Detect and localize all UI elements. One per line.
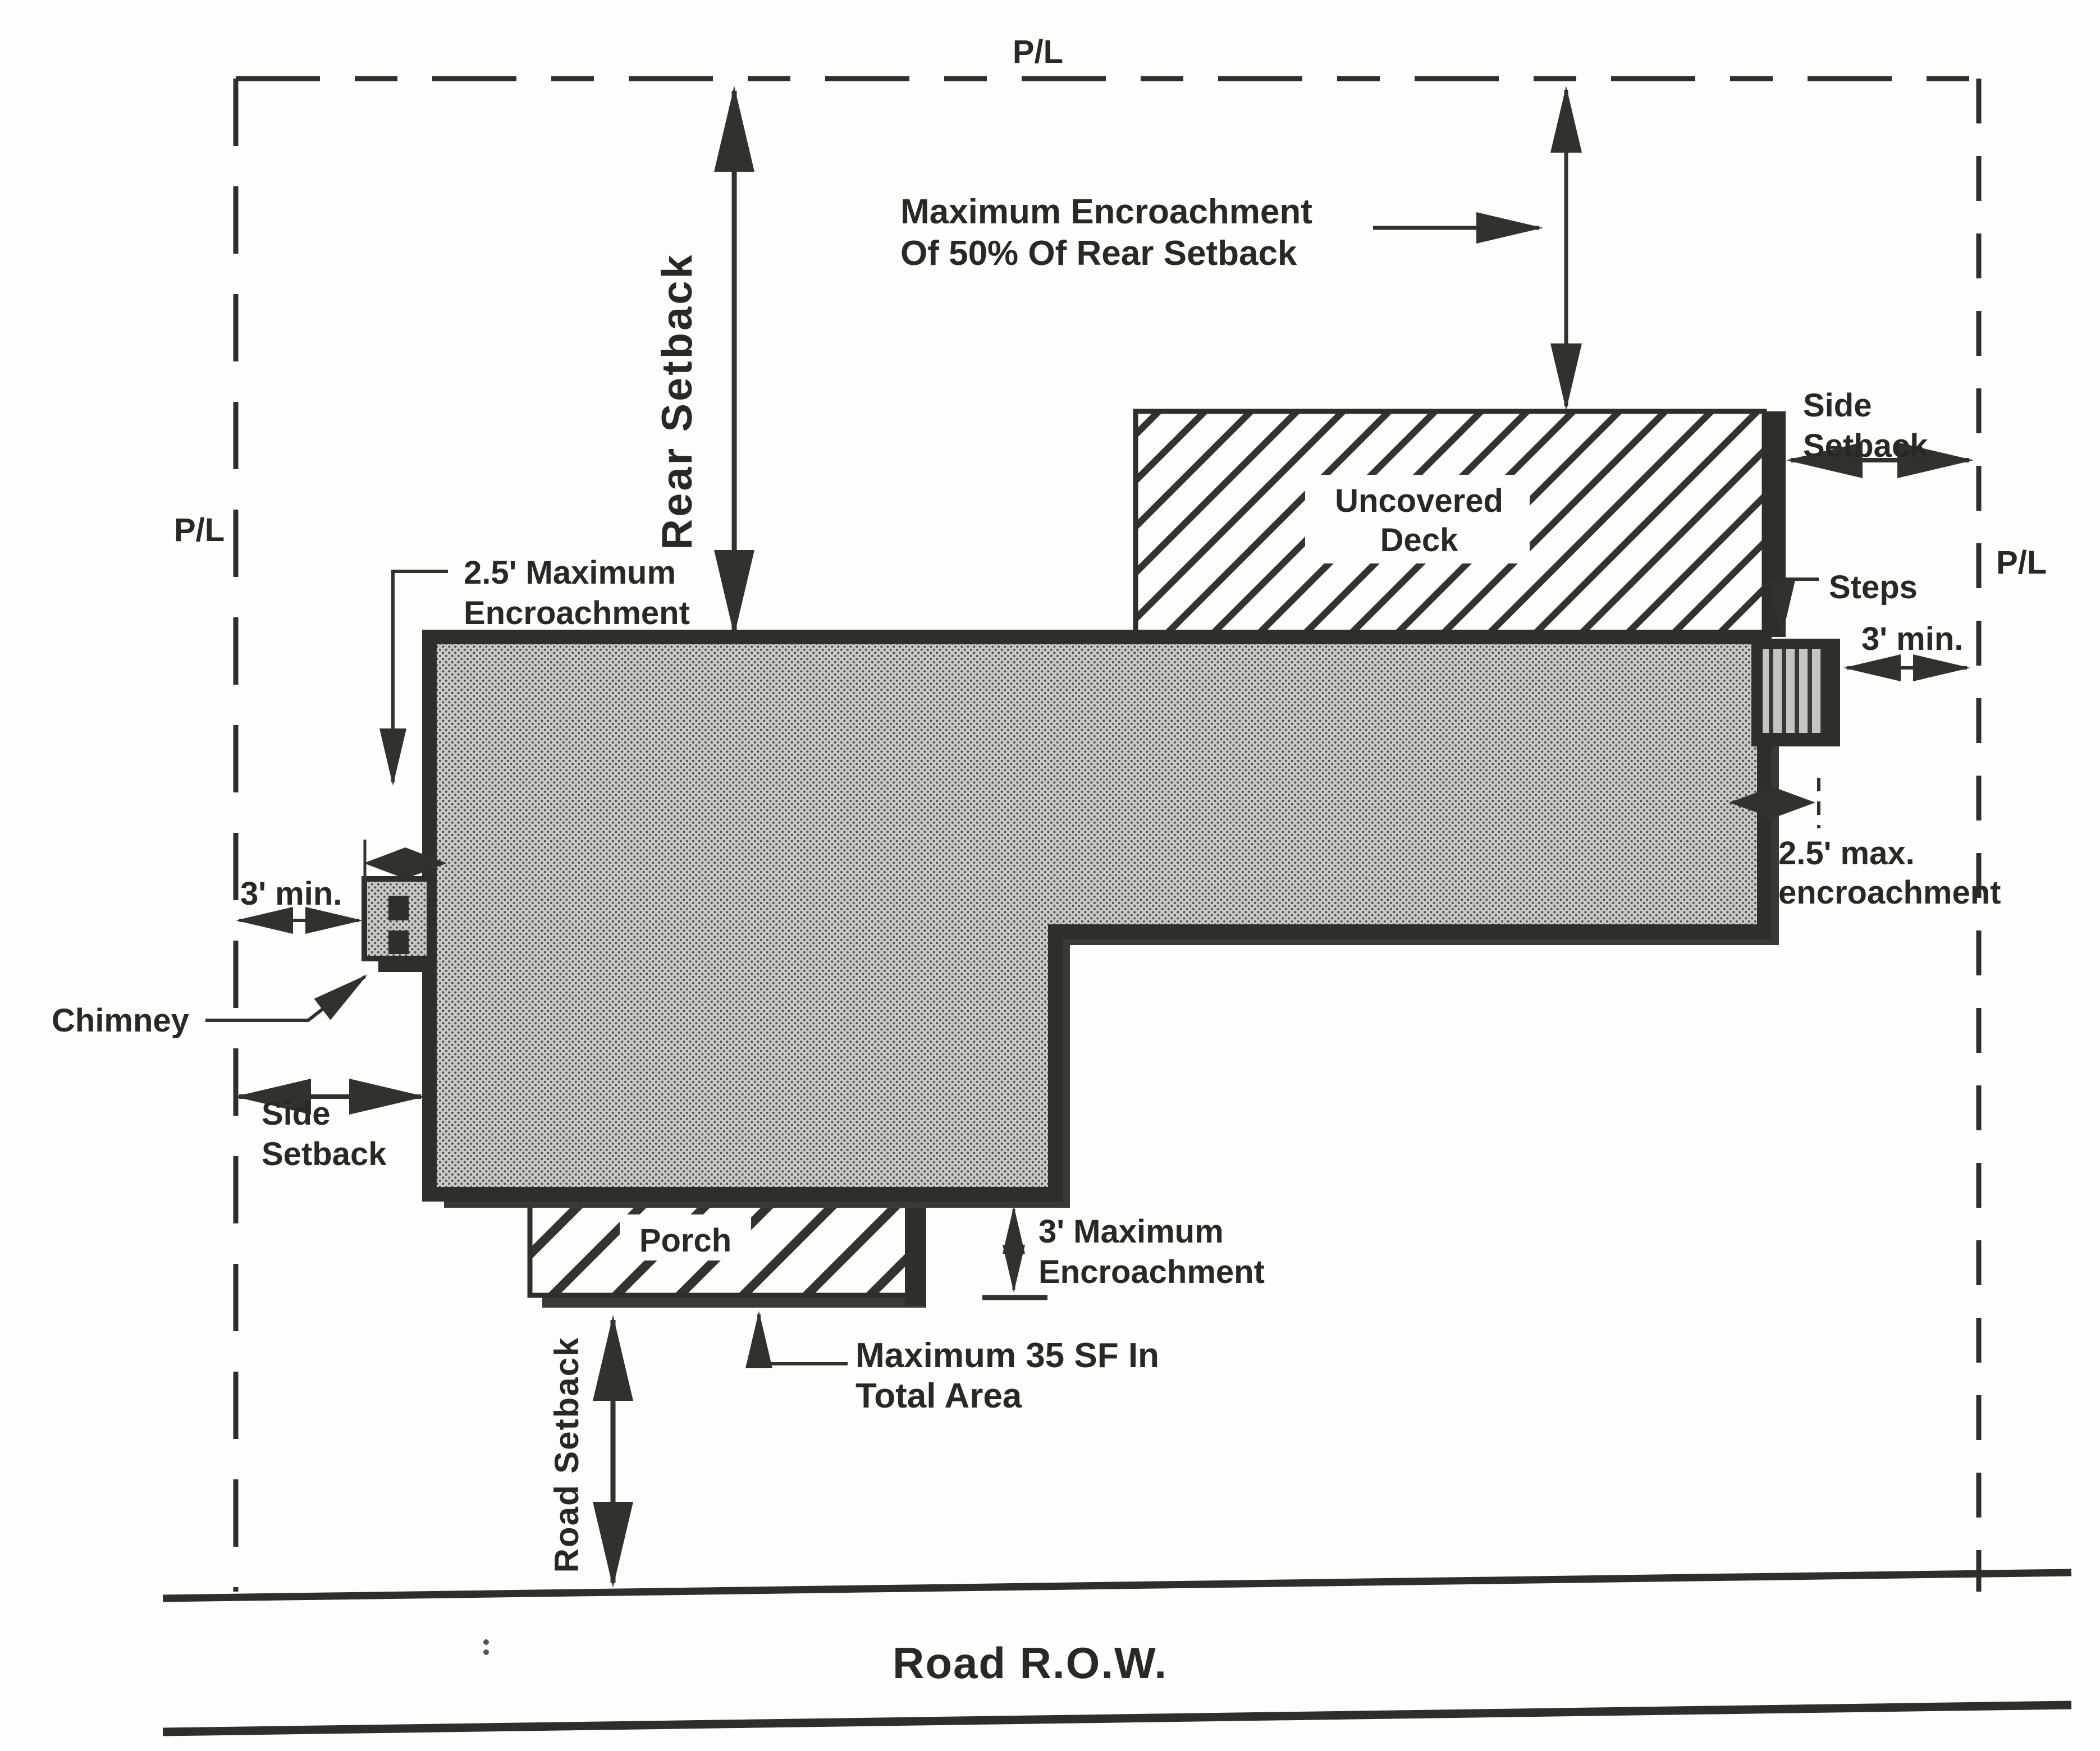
min-3ft-left-label: 3' min. [240, 875, 342, 912]
site-plan-canvas: P/L P/L P/L Rear Setback Maximum Encroac… [0, 0, 2100, 1751]
chimney-ledge-shadow [378, 960, 429, 972]
property-line-label-right: P/L [1996, 544, 2047, 581]
chimney-label: Chimney [52, 1002, 189, 1039]
chimney-flue-top [388, 896, 409, 920]
porch-label: Porch [639, 1222, 731, 1259]
road-row-label: Road R.O.W. [893, 1638, 1168, 1688]
property-line-label-left: P/L [174, 512, 225, 548]
porch-encroachment-label-line2: Encroachment [1038, 1254, 1265, 1290]
uncovered-deck-label-line1: Uncovered [1335, 483, 1503, 519]
left-encroachment-label-line2: Encroachment [464, 595, 690, 631]
right-encroachment-label-line1: 2.5' max. [1778, 835, 1915, 872]
min-3ft-right-label: 3' min. [1861, 621, 1963, 657]
left-encroachment-label-line1: 2.5' Maximum [464, 554, 676, 591]
porch-area-label-line1: Maximum 35 SF In [855, 1336, 1159, 1375]
porch-area-label-line2: Total Area [855, 1377, 1022, 1415]
rear-encroachment-label-line1: Maximum Encroachment [900, 192, 1312, 231]
porch-encroachment-label-line1: 3' Maximum [1038, 1213, 1224, 1250]
rear-setback-label: Rear Setback [653, 253, 701, 550]
rear-encroachment-label-line2: Of 50% Of Rear Setback [900, 234, 1297, 273]
side-setback-right-label-line2: Setback [1803, 428, 1928, 464]
property-line-label-top: P/L [1013, 34, 1063, 70]
uncovered-deck-label-line2: Deck [1380, 522, 1458, 558]
steps-label: Steps [1829, 569, 1918, 606]
side-setback-right-label-line1: Side [1803, 387, 1872, 424]
site-plan-diagram: P/L P/L P/L Rear Setback Maximum Encroac… [0, 0, 2100, 1751]
road-setback-label: Road Setback [548, 1337, 585, 1573]
right-encroachment-label-line2: encroachment [1778, 874, 2001, 911]
steps-shape [1763, 649, 1822, 733]
chimney-flue-bottom [388, 930, 409, 954]
porch-right-edge-bar [905, 1194, 926, 1305]
side-setback-left-label-line1: Side [262, 1095, 331, 1132]
side-setback-left-label-line2: Setback [262, 1136, 387, 1172]
